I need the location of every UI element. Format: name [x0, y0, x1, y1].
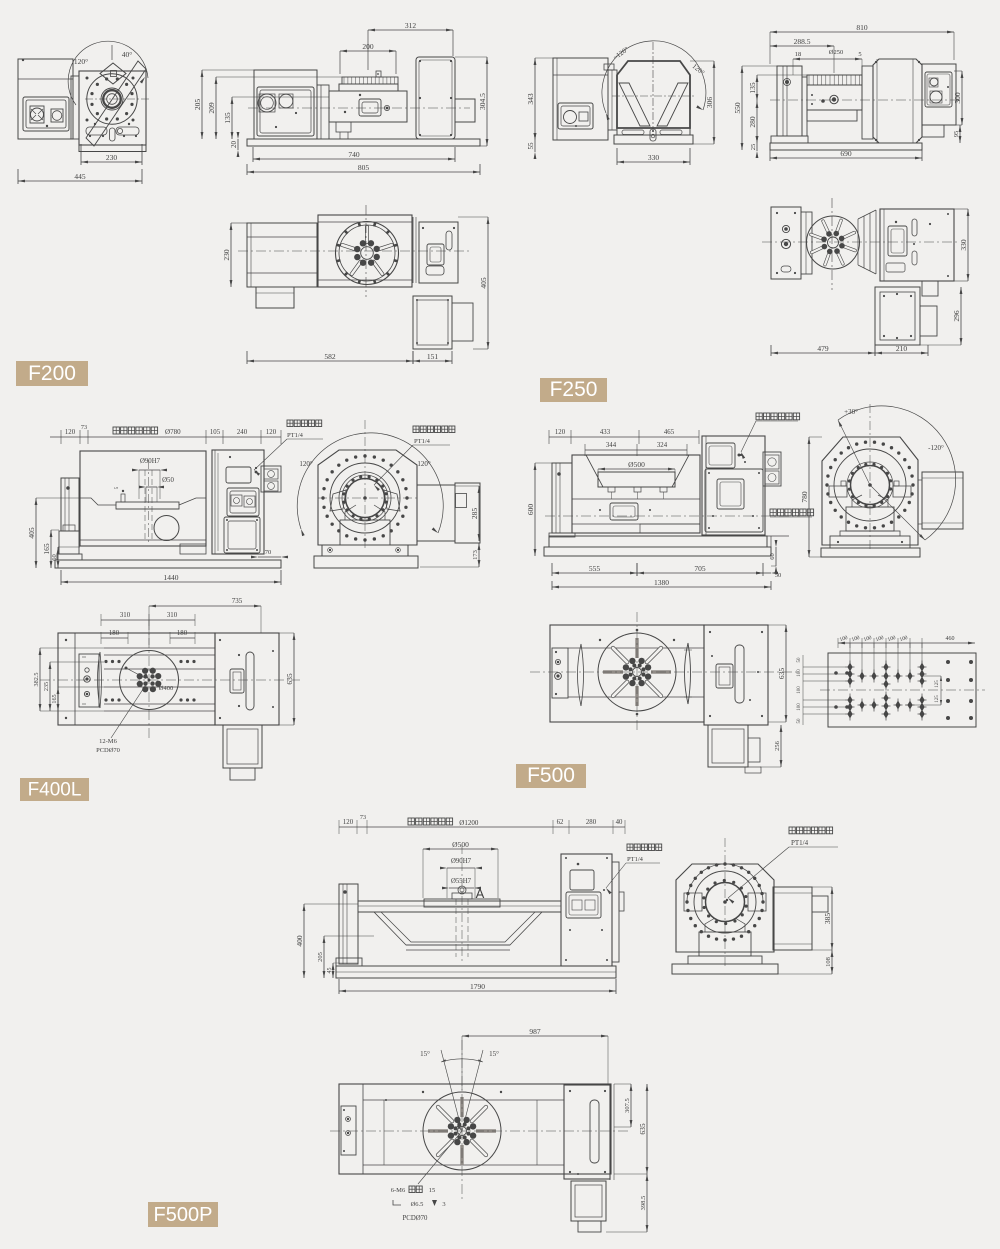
svg-text:Ø1200: Ø1200	[459, 819, 479, 827]
svg-text:635: 635	[777, 668, 786, 680]
svg-text:120: 120	[266, 429, 277, 436]
svg-text:6-M6: 6-M6	[391, 1187, 406, 1194]
svg-text:Ø55H7: Ø55H7	[451, 878, 472, 885]
svg-text:3: 3	[442, 1201, 445, 1208]
svg-text:635: 635	[285, 673, 294, 685]
svg-text:Ø250: Ø250	[829, 49, 843, 56]
svg-text:18: 18	[795, 51, 802, 58]
svg-text:405: 405	[479, 277, 488, 289]
svg-text:12-M6: 12-M6	[99, 738, 117, 745]
svg-text:PT1/4: PT1/4	[791, 839, 809, 847]
svg-text:PT1/4: PT1/4	[414, 438, 431, 445]
svg-text:460: 460	[946, 636, 955, 642]
svg-text:205: 205	[317, 952, 324, 962]
svg-text:343: 343	[526, 93, 535, 105]
svg-text:Ø6.5: Ø6.5	[411, 1201, 424, 1208]
svg-text:235: 235	[43, 682, 50, 691]
svg-text:135: 135	[223, 112, 232, 124]
svg-text:300: 300	[953, 92, 962, 104]
svg-text:445: 445	[74, 172, 86, 181]
svg-text:256: 256	[774, 740, 781, 751]
svg-text:15°: 15°	[489, 1050, 499, 1058]
svg-text:385: 385	[823, 913, 832, 925]
svg-text:987: 987	[529, 1027, 541, 1036]
svg-text:55: 55	[527, 142, 535, 150]
svg-text:Ø400: Ø400	[159, 685, 173, 692]
svg-text:735: 735	[232, 597, 243, 605]
svg-text:62: 62	[557, 819, 564, 826]
svg-text:230: 230	[222, 249, 231, 261]
svg-text:Ø780: Ø780	[165, 428, 181, 436]
svg-text:120°: 120°	[417, 460, 431, 468]
svg-text:F200: F200	[28, 362, 76, 385]
svg-text:105: 105	[210, 429, 221, 436]
svg-text:+30°: +30°	[844, 408, 858, 416]
svg-text:550: 550	[733, 102, 742, 114]
svg-text:1440: 1440	[164, 573, 179, 582]
svg-text:310: 310	[167, 612, 178, 619]
svg-text:120: 120	[65, 429, 76, 436]
svg-text:330: 330	[959, 239, 968, 251]
svg-text:73: 73	[81, 424, 87, 431]
svg-text:F500P: F500P	[154, 1204, 213, 1226]
svg-text:210: 210	[896, 344, 908, 353]
svg-text:230: 230	[106, 153, 118, 162]
svg-text:209: 209	[207, 102, 216, 114]
svg-text:285: 285	[470, 508, 479, 520]
svg-text:780: 780	[800, 491, 809, 503]
svg-text:405: 405	[27, 527, 36, 539]
svg-text:382.5: 382.5	[33, 673, 40, 687]
svg-text:1790: 1790	[470, 982, 485, 991]
svg-text:50: 50	[797, 718, 802, 724]
svg-text:73: 73	[360, 814, 366, 821]
svg-text:312: 312	[405, 21, 417, 30]
svg-text:1380: 1380	[654, 578, 669, 587]
svg-text:307.5: 307.5	[624, 1098, 631, 1113]
svg-text:465: 465	[664, 429, 675, 436]
svg-text:100: 100	[797, 686, 802, 694]
svg-text:125: 125	[935, 695, 940, 703]
svg-text:108: 108	[825, 957, 832, 967]
svg-text:165: 165	[42, 543, 51, 555]
svg-text:740: 740	[348, 150, 360, 159]
svg-text:398.5: 398.5	[640, 1196, 647, 1211]
svg-text:PT1/4: PT1/4	[627, 856, 644, 863]
svg-text:50: 50	[797, 657, 802, 663]
svg-text:280: 280	[748, 116, 757, 128]
svg-text:Ø90H7: Ø90H7	[140, 458, 161, 465]
svg-text:810: 810	[856, 23, 868, 32]
svg-text:100: 100	[797, 669, 802, 677]
svg-text:280: 280	[586, 819, 597, 826]
svg-text:100: 100	[797, 703, 802, 711]
svg-text:200: 200	[362, 42, 374, 51]
svg-text:805: 805	[358, 163, 370, 172]
svg-text:135: 135	[748, 82, 757, 94]
svg-text:173: 173	[472, 550, 479, 560]
svg-text:F250: F250	[550, 378, 598, 401]
svg-text:582: 582	[324, 352, 336, 361]
svg-text:324: 324	[657, 442, 668, 449]
svg-text:296: 296	[952, 310, 961, 322]
svg-text:288.5: 288.5	[794, 37, 811, 46]
svg-text:60: 60	[51, 554, 58, 561]
svg-text:165: 165	[51, 694, 58, 703]
svg-text:5: 5	[858, 51, 861, 58]
svg-text:Ø90H7: Ø90H7	[451, 858, 472, 865]
svg-text:433: 433	[600, 429, 611, 436]
svg-text:40°: 40°	[122, 50, 133, 59]
svg-text:15: 15	[429, 1187, 436, 1194]
svg-text:125: 125	[935, 680, 940, 688]
svg-text:50: 50	[775, 572, 782, 579]
svg-text:330: 330	[648, 153, 660, 162]
svg-text:20: 20	[230, 141, 238, 149]
svg-text:F500: F500	[527, 764, 575, 787]
svg-text:40: 40	[616, 819, 623, 826]
svg-text:151: 151	[427, 352, 439, 361]
svg-text:120: 120	[555, 429, 566, 436]
svg-text:310: 310	[120, 612, 131, 619]
svg-text:70: 70	[265, 549, 272, 556]
svg-text:-120°: -120°	[928, 444, 944, 452]
svg-text:555: 555	[589, 564, 601, 573]
svg-text:205: 205	[193, 99, 202, 111]
svg-text:705: 705	[694, 564, 706, 573]
svg-text:240: 240	[237, 429, 248, 436]
svg-text:15°: 15°	[420, 1050, 430, 1058]
svg-text:25: 25	[750, 144, 757, 151]
svg-text:60: 60	[769, 553, 776, 560]
svg-text:Ø500: Ø500	[452, 840, 469, 849]
svg-text:95: 95	[953, 131, 960, 138]
svg-text:635: 635	[638, 1123, 647, 1135]
svg-text:F400L: F400L	[28, 779, 82, 800]
svg-text:45: 45	[327, 968, 333, 974]
svg-text:Ø500: Ø500	[628, 460, 645, 469]
svg-text:PCDØ70: PCDØ70	[96, 747, 120, 754]
svg-text:306: 306	[705, 97, 714, 109]
svg-text:690: 690	[840, 149, 852, 158]
svg-text:304.5: 304.5	[478, 93, 487, 110]
svg-text:344: 344	[606, 442, 617, 449]
svg-text:120°: 120°	[299, 460, 313, 468]
svg-text:120: 120	[343, 819, 354, 826]
svg-text:479: 479	[817, 344, 829, 353]
svg-text:600: 600	[526, 504, 535, 516]
svg-text:PCDØ70: PCDØ70	[403, 1215, 429, 1222]
svg-text:PT1/4: PT1/4	[287, 432, 304, 439]
svg-text:120°: 120°	[74, 57, 88, 66]
svg-text:400: 400	[295, 935, 304, 947]
svg-text:Ø50: Ø50	[162, 477, 174, 484]
